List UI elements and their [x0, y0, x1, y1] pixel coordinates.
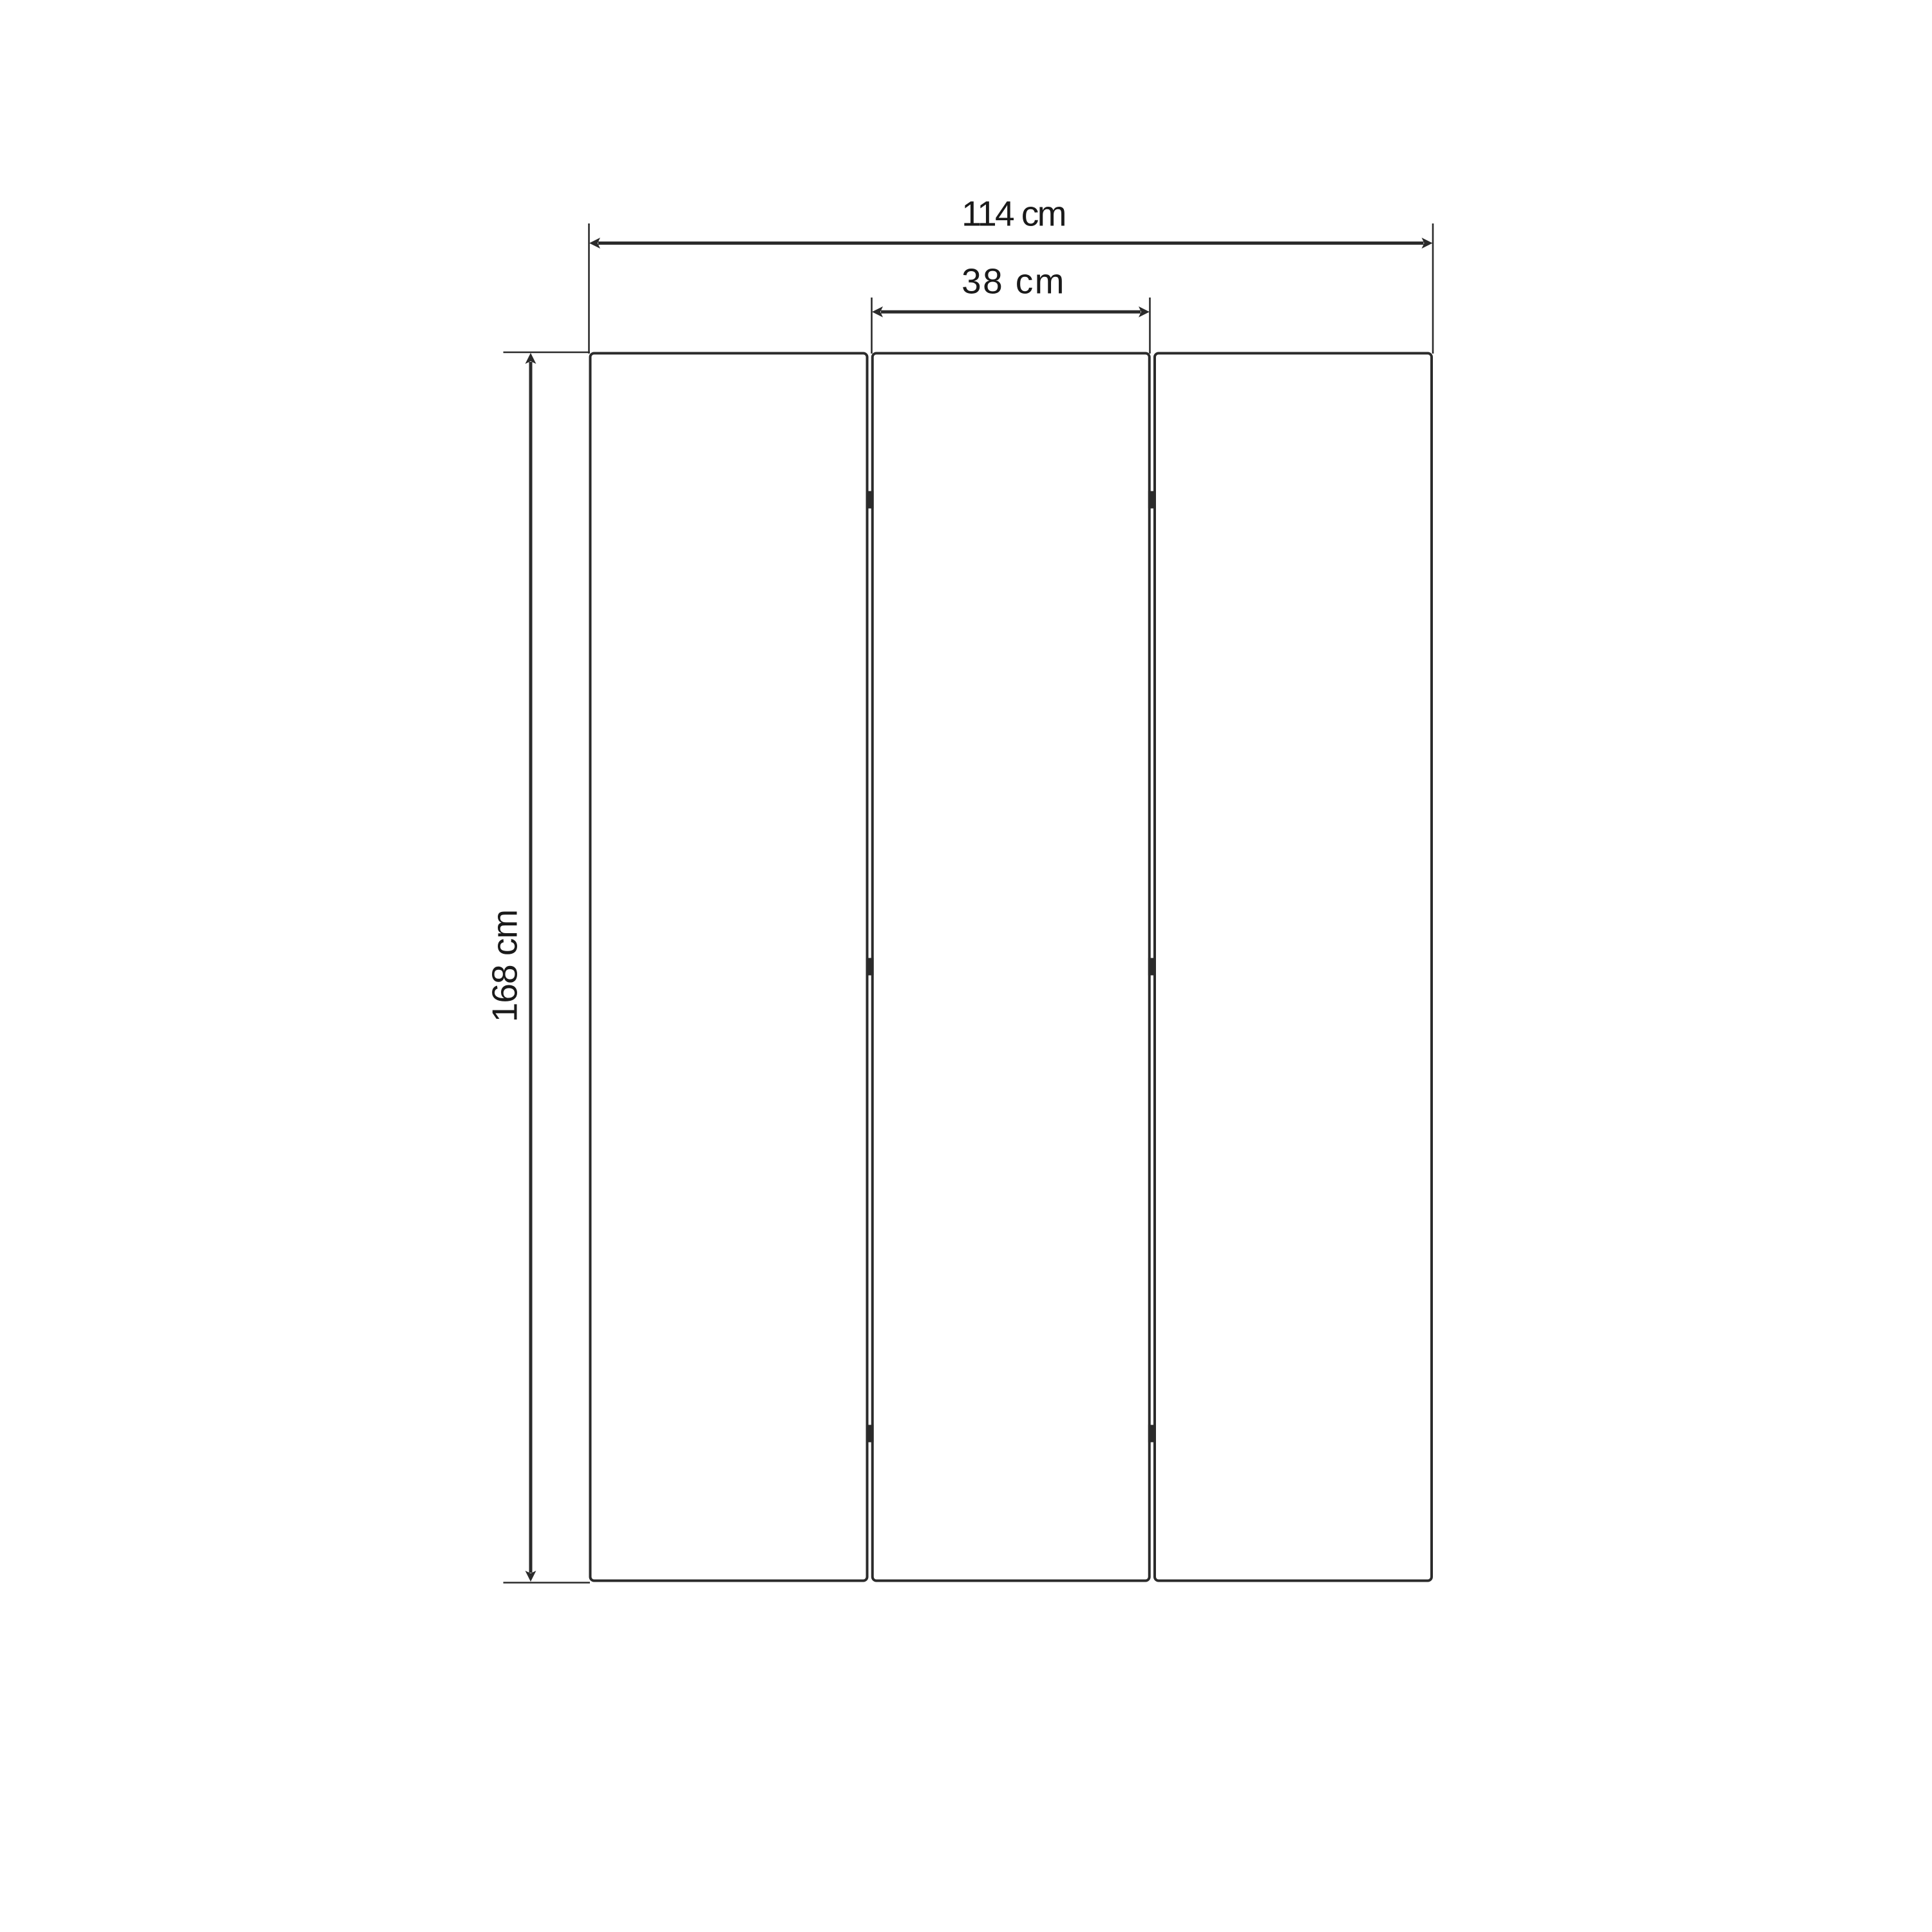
svg-text:168 cm: 168 cm: [485, 910, 525, 1022]
svg-text:38 cm: 38 cm: [961, 261, 1066, 301]
svg-text:114 cm: 114 cm: [961, 194, 1065, 234]
